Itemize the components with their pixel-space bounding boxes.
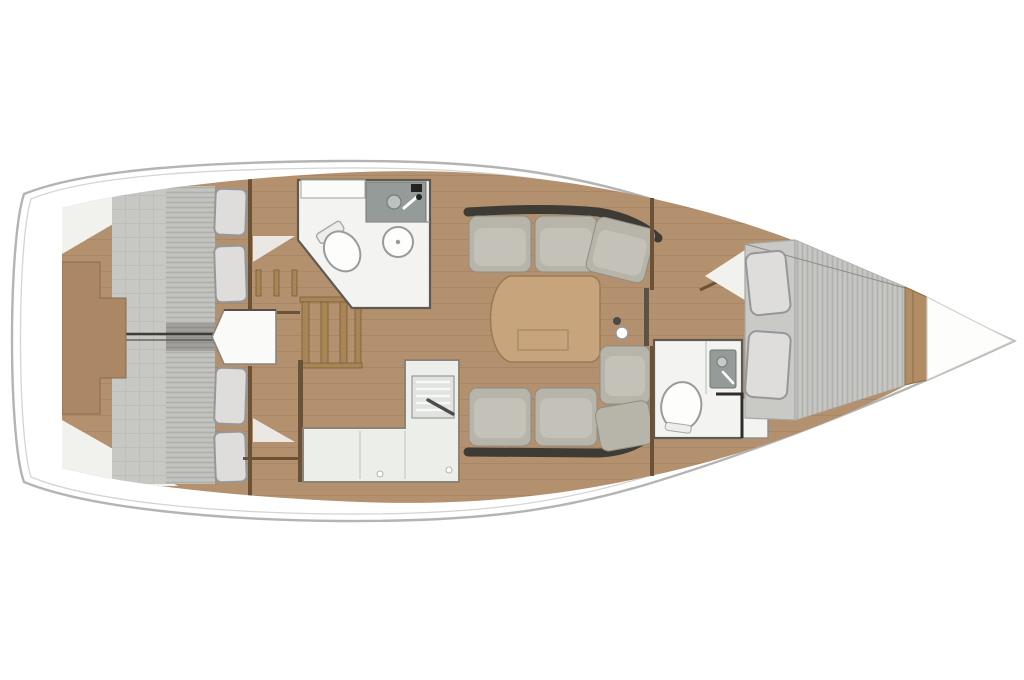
stair-step (321, 302, 328, 364)
aft-starboard-bulkhead (248, 366, 252, 506)
aft-cabin-port-pillows (214, 188, 247, 302)
sink-knob-icon (446, 467, 452, 473)
cushion-highlight (474, 398, 526, 438)
fitting-icon (613, 317, 621, 325)
sofa-cushion (594, 400, 655, 453)
shower-fitting-icon (411, 184, 422, 192)
sink-knob-icon (377, 471, 383, 477)
deck-light-icon (616, 327, 628, 339)
anchor-locker (927, 297, 1013, 380)
shower-drain-icon (387, 195, 401, 209)
stair-rail-bottom (300, 363, 362, 368)
bulkhead-wall-top (650, 198, 654, 290)
handrail-post (644, 288, 649, 346)
engine-compartment (212, 310, 276, 364)
stair-step (302, 302, 309, 364)
cushion-highlight (605, 356, 645, 396)
pillow (214, 245, 247, 302)
seam-shadow (166, 323, 215, 351)
cushion-highlight (540, 398, 592, 438)
shower-drain-icon (717, 357, 727, 367)
aft-port-bulkhead (248, 168, 252, 314)
stair-post (292, 270, 297, 296)
bow (905, 287, 1013, 385)
sink-drain-icon (396, 240, 400, 244)
yacht-floorplan-image (0, 0, 1024, 680)
vberth-pillow-starboard (745, 331, 792, 400)
pillow (745, 250, 791, 316)
pillow (745, 331, 792, 400)
pillow (214, 431, 247, 482)
pillow (214, 367, 247, 424)
bow-trim-shelf (905, 287, 927, 385)
corridor-wall-bottom (243, 457, 300, 460)
sofa-corner-cushion (594, 400, 655, 453)
floorplan-canvas (0, 0, 1024, 680)
stair-post (256, 270, 261, 296)
pillow (214, 188, 247, 235)
salon-table (491, 276, 601, 362)
stair-step (340, 302, 347, 364)
cushion-highlight (474, 228, 526, 266)
shower-knob-icon (416, 194, 422, 200)
aft-head-cabinet (301, 180, 365, 198)
stair-post (274, 270, 279, 296)
cushion-highlight (540, 228, 592, 266)
vberth-pillow-port (745, 250, 791, 316)
stair-step (355, 302, 361, 364)
